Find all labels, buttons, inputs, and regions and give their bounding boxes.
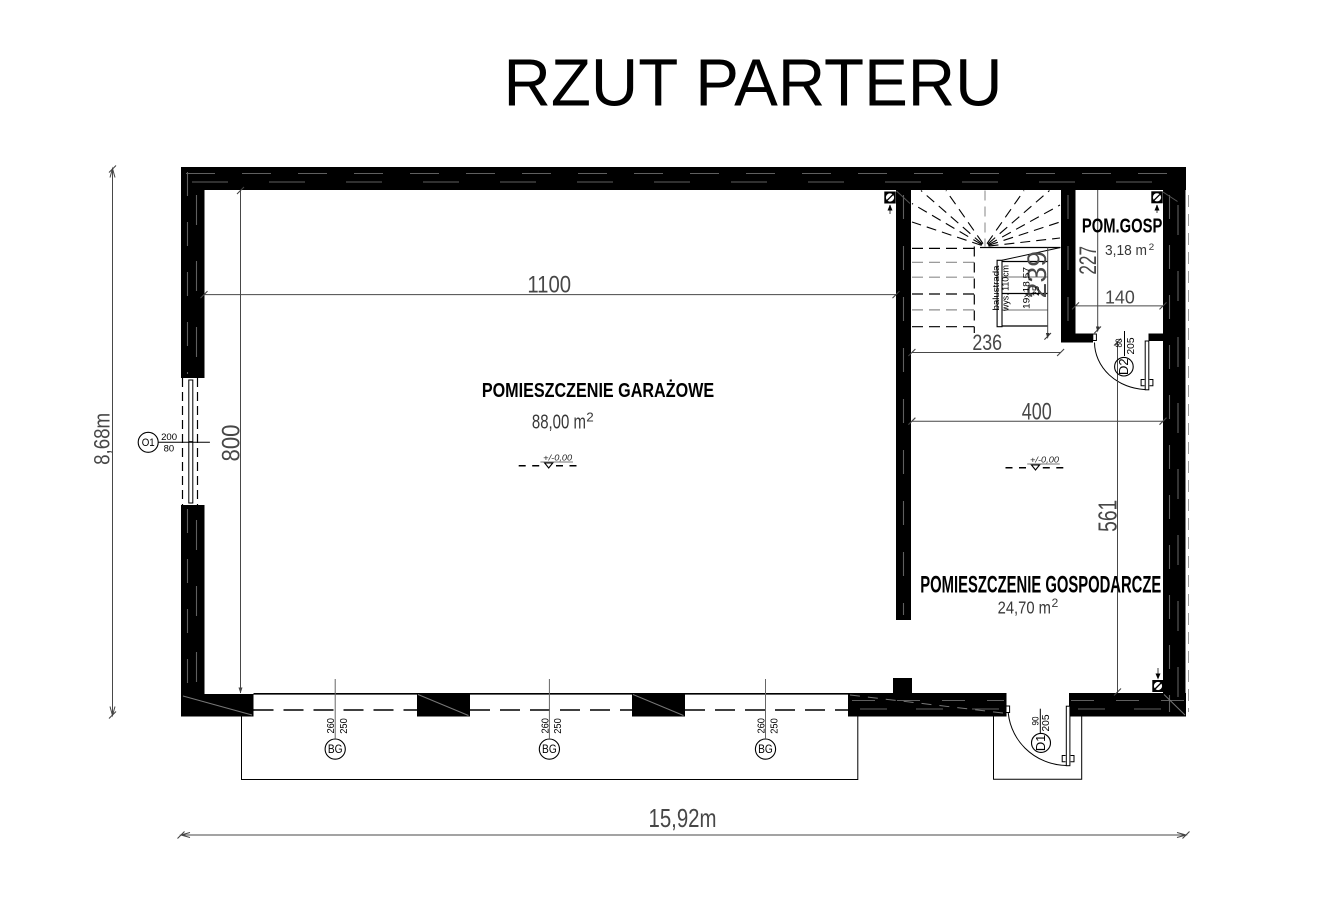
svg-text:200: 200 bbox=[161, 432, 177, 442]
svg-text:260: 260 bbox=[757, 718, 768, 734]
svg-text:90: 90 bbox=[1031, 717, 1041, 726]
svg-text:BG: BG bbox=[328, 744, 343, 756]
svg-text:balustrada: balustrada bbox=[991, 265, 1001, 311]
svg-text:POMIESZCZENIE GOSPODARCZE: POMIESZCZENIE GOSPODARCZE bbox=[920, 572, 1161, 599]
svg-text:+/-0,00: +/-0,00 bbox=[1030, 455, 1059, 465]
svg-text:140: 140 bbox=[1105, 287, 1135, 308]
svg-text:1100: 1100 bbox=[527, 272, 571, 299]
svg-text:BG: BG bbox=[542, 744, 557, 756]
svg-text:3,18 m: 3,18 m bbox=[1105, 243, 1147, 259]
svg-text:RZUT PARTERU: RZUT PARTERU bbox=[504, 46, 1003, 121]
svg-text:561: 561 bbox=[1093, 500, 1123, 532]
svg-text:BG: BG bbox=[758, 744, 773, 756]
svg-text:88,00 m: 88,00 m bbox=[532, 412, 586, 434]
svg-text:250: 250 bbox=[769, 718, 780, 734]
svg-text:2: 2 bbox=[586, 410, 594, 425]
svg-text:205: 205 bbox=[1125, 337, 1137, 354]
svg-text:260: 260 bbox=[326, 718, 337, 734]
svg-text:260: 260 bbox=[540, 718, 551, 734]
svg-text:D1: D1 bbox=[1034, 735, 1048, 752]
svg-text:80: 80 bbox=[164, 443, 175, 453]
svg-text:800: 800 bbox=[218, 425, 246, 462]
svg-text:236: 236 bbox=[972, 330, 1002, 355]
svg-text:400: 400 bbox=[1022, 399, 1052, 426]
svg-text:POMIESZCZENIE GARAŻOWE: POMIESZCZENIE GARAŻOWE bbox=[482, 379, 714, 402]
svg-text:80: 80 bbox=[1114, 339, 1124, 348]
svg-text:250: 250 bbox=[553, 718, 564, 734]
svg-text:24,70 m: 24,70 m bbox=[998, 598, 1051, 618]
svg-text:2: 2 bbox=[1149, 242, 1155, 253]
svg-text:227: 227 bbox=[1075, 246, 1102, 275]
svg-text:D2: D2 bbox=[1117, 358, 1131, 375]
svg-text:15,92m: 15,92m bbox=[649, 803, 717, 833]
svg-text:205: 205 bbox=[1040, 714, 1052, 731]
svg-text:250: 250 bbox=[339, 718, 350, 734]
svg-text:+/-0,00: +/-0,00 bbox=[543, 453, 572, 463]
svg-text:8,68m: 8,68m bbox=[90, 413, 115, 465]
svg-text:2: 2 bbox=[1052, 598, 1059, 610]
svg-text:POM.GOSP: POM.GOSP bbox=[1082, 216, 1162, 238]
svg-text:O1: O1 bbox=[142, 437, 155, 449]
svg-text:wys. 110cm: wys. 110cm bbox=[1001, 265, 1011, 312]
svg-text:25: 25 bbox=[1031, 286, 1042, 296]
